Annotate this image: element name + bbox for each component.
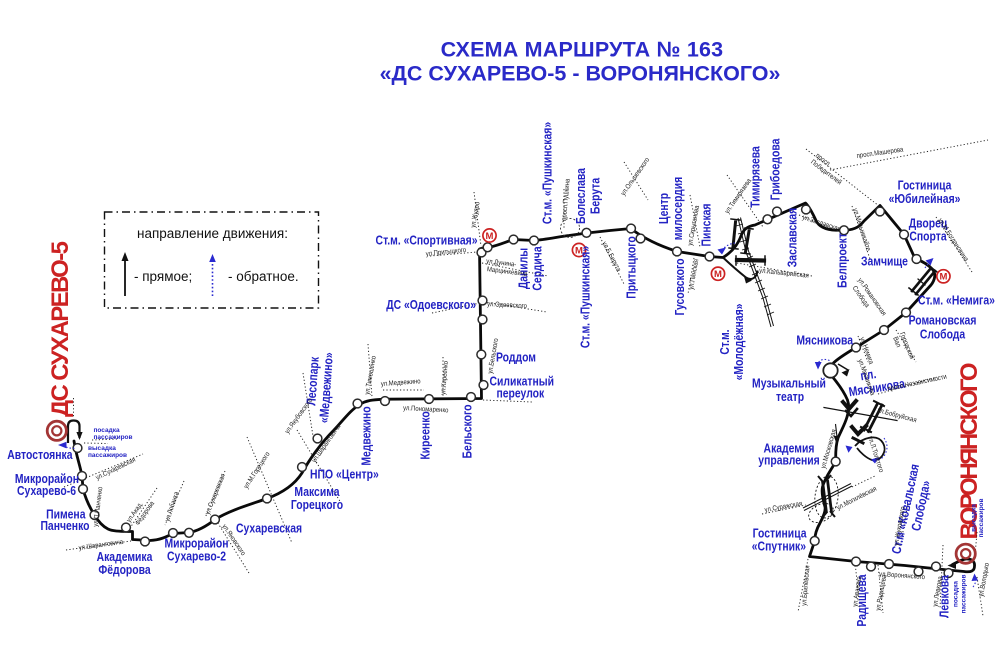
- svg-text:Грибоедова: Грибоедова: [768, 138, 782, 200]
- svg-text:Автостоянка: Автостоянка: [7, 448, 73, 462]
- svg-text:Центр: Центр: [657, 193, 671, 224]
- svg-text:посадка: посадка: [94, 427, 120, 434]
- svg-text:высадка: высадка: [971, 504, 978, 532]
- svg-text:пассажиров: пассажиров: [961, 574, 968, 613]
- svg-text:посадка: посадка: [953, 581, 960, 607]
- svg-text:управления: управления: [758, 453, 820, 467]
- svg-text:Сухаревская: Сухаревская: [236, 521, 302, 535]
- svg-text:Ст.м. «Немига»: Ст.м. «Немига»: [918, 293, 995, 307]
- svg-text:Берута: Берута: [588, 177, 602, 214]
- svg-text:Спорта: Спорта: [909, 229, 947, 243]
- svg-text:«ДС СУХАРЕВО-5 - ВОРОНЯНСКОГО»: «ДС СУХАРЕВО-5 - ВОРОНЯНСКОГО»: [380, 62, 781, 86]
- svg-text:Болеслава: Болеслава: [574, 168, 588, 224]
- svg-text:переулок: переулок: [497, 386, 545, 400]
- svg-text:НПО «Центр»: НПО «Центр»: [310, 467, 379, 481]
- svg-text:пассажиров: пассажиров: [94, 434, 133, 441]
- svg-text:Сухарево-6: Сухарево-6: [17, 484, 76, 498]
- svg-text:Ст.м. «Пушкинская»: Ст.м. «Пушкинская»: [540, 121, 554, 224]
- svg-text:Притыцкого: Притыцкого: [624, 236, 638, 299]
- svg-text:Киреенко: Киреенко: [418, 411, 432, 459]
- svg-text:Ст.м. «Спортивная»: Ст.м. «Спортивная»: [376, 233, 478, 247]
- svg-text:Данилы: Данилы: [516, 248, 530, 289]
- svg-text:Гостиница: Гостиница: [898, 178, 952, 192]
- svg-text:Музыкальный: Музыкальный: [752, 376, 826, 390]
- svg-text:Мясникова: Мясникова: [796, 333, 853, 347]
- svg-text:«Молодёжная»: «Молодёжная»: [732, 303, 746, 380]
- svg-text:Роддом: Роддом: [496, 350, 536, 364]
- svg-text:М: М: [486, 231, 494, 242]
- svg-text:Пинская: Пинская: [699, 203, 713, 246]
- svg-text:направление движения:: направление движения:: [137, 226, 288, 241]
- svg-text:Гусовского: Гусовского: [673, 258, 687, 315]
- svg-text:Тимирязева: Тимирязева: [748, 146, 762, 208]
- svg-text:высадка: высадка: [88, 445, 116, 452]
- svg-text:Сухарево-2: Сухарево-2: [167, 549, 226, 563]
- svg-text:«Спутник»: «Спутник»: [752, 539, 807, 553]
- svg-text:Замчище: Замчище: [861, 254, 908, 268]
- svg-text:ДС «Одоевского»: ДС «Одоевского»: [386, 298, 476, 312]
- svg-text:- прямое;: - прямое;: [134, 269, 192, 284]
- svg-text:Белпроект: Белпроект: [835, 233, 849, 288]
- svg-text:Сердича: Сердича: [530, 246, 544, 291]
- svg-text:театр: театр: [776, 390, 804, 404]
- svg-text:Фёдорова: Фёдорова: [98, 563, 151, 577]
- svg-text:М: М: [939, 272, 947, 283]
- svg-text:«Юбилейная»: «Юбилейная»: [889, 192, 961, 206]
- svg-text:Горецкого: Горецкого: [291, 498, 343, 512]
- svg-text:СХЕМА МАРШРУТА № 163: СХЕМА МАРШРУТА № 163: [441, 38, 724, 62]
- svg-text:- обратное.: - обратное.: [228, 269, 299, 284]
- svg-text:М: М: [714, 269, 722, 280]
- svg-text:Панченко: Панченко: [40, 519, 89, 533]
- svg-text:пассажиров: пассажиров: [88, 452, 127, 459]
- svg-text:Романовская: Романовская: [909, 313, 977, 327]
- svg-text:Медвежино: Медвежино: [359, 406, 373, 465]
- svg-text:милосердия: милосердия: [671, 177, 685, 241]
- svg-text:Слобода: Слобода: [920, 327, 966, 341]
- svg-text:Бельского: Бельского: [460, 405, 474, 459]
- svg-text:пассажиров: пассажиров: [978, 498, 985, 537]
- svg-text:Ст.м.: Ст.м.: [718, 329, 732, 354]
- svg-text:Ст.м. «Пушкинская»: Ст.м. «Пушкинская»: [578, 245, 592, 348]
- svg-text:ДС СУХАРЕВО-5: ДС СУХАРЕВО-5: [47, 241, 74, 417]
- svg-text:Заславская: Заславская: [785, 208, 799, 268]
